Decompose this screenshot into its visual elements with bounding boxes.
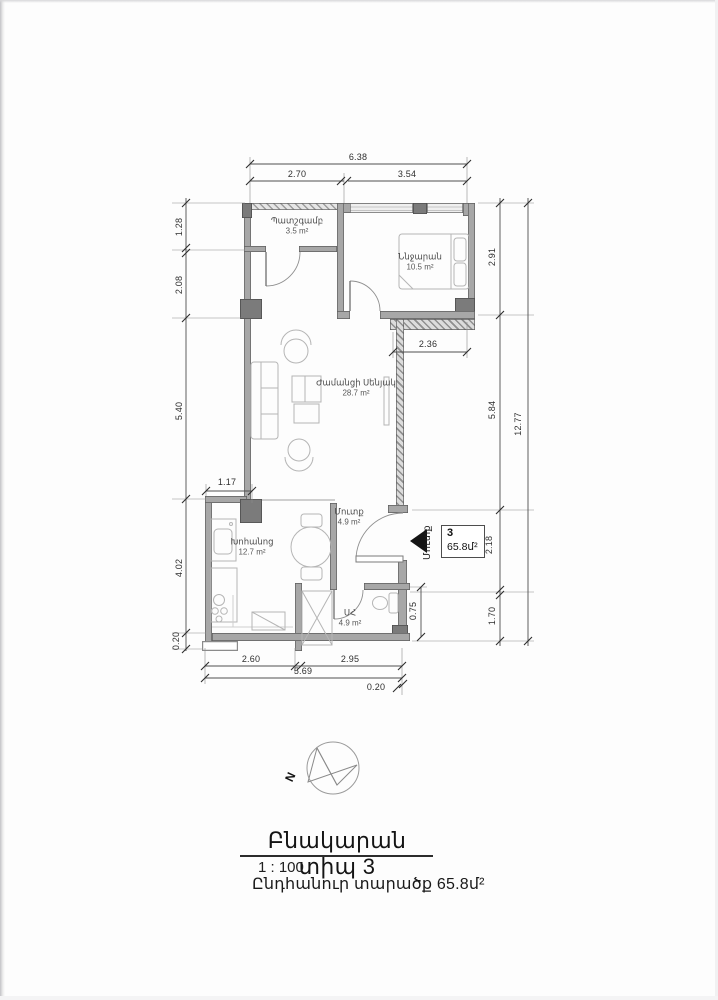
room-name: Ննջարան [398, 251, 442, 262]
title-underline [240, 855, 433, 857]
balcony-railing [244, 203, 343, 210]
room-label-bathroom: ՍՀ 4.9 m² [339, 607, 362, 628]
wall-segment [337, 311, 350, 319]
dim-left-2: 2.08 [174, 276, 184, 294]
room-area: 4.9 m² [334, 517, 364, 527]
kitchen-cabinet [252, 612, 285, 630]
page-edge-top [0, 0, 718, 3]
dining-table [291, 514, 331, 580]
wall-segment [299, 246, 337, 252]
room-area: 4.9 m² [339, 618, 362, 628]
bedroom-window [350, 203, 413, 213]
room-name: Պատշգամբ [271, 215, 323, 226]
dim-right-total: 12.77 [513, 412, 523, 436]
room-area: 10.5 m² [398, 262, 442, 272]
room-name: Մուտք [334, 506, 364, 517]
toilet [373, 593, 399, 613]
room-area: 12.7 m² [230, 547, 273, 557]
armchair [285, 439, 313, 471]
dim-right-2: 5.84 [487, 401, 497, 419]
dim-left-5: 0.20 [171, 632, 181, 650]
wall-segment [388, 505, 408, 513]
room-name: ՍՀ [339, 607, 362, 618]
page-edge-left [0, 0, 5, 1000]
room-label-kitchen: Խոհանոց 12.7 m² [230, 536, 273, 557]
apartment-area: 65.8մ² [447, 541, 484, 554]
dim-right-bottom: 0.75 [408, 602, 418, 620]
dim-bottom-right: 2.95 [341, 654, 359, 664]
kitchen-opening-line [262, 499, 335, 501]
dimension-lines [186, 164, 528, 678]
dim-left-4: 4.02 [174, 559, 184, 577]
balcony-door-arc [266, 252, 300, 286]
room-label-hall: Մուտք 4.9 m² [334, 506, 364, 527]
counter-line [212, 595, 293, 627]
room-label-living: Ժամանցի Սենյակ 28.7 m² [316, 377, 396, 398]
entry-arrow-label: Մուտք [422, 525, 433, 560]
bedroom-window [427, 203, 463, 213]
dim-bottom-total: 5.69 [294, 666, 312, 676]
north-compass [307, 742, 359, 794]
wall-segment [380, 311, 475, 319]
dim-top-left: 2.70 [288, 169, 306, 179]
dim-right-4: 1.70 [487, 607, 497, 625]
dim-left-3: 5.40 [174, 402, 184, 420]
wall-segment [212, 633, 410, 641]
exterior-wall [396, 319, 404, 510]
wall-segment [244, 246, 266, 252]
exterior-step [202, 641, 238, 651]
room-name: Խոհանոց [230, 536, 273, 547]
dim-right-3: 2.18 [484, 536, 494, 554]
room-name: Ժամանցի Սենյակ [316, 377, 396, 388]
total-area: Ընդհանուր տարածք 65.8մ² [252, 874, 485, 894]
dim-top-right: 3.54 [398, 169, 416, 179]
dim-top-total: 6.38 [349, 152, 367, 162]
column [242, 203, 252, 218]
north-label: N [282, 770, 298, 784]
wall-segment [337, 203, 344, 313]
dim-niche: 2.36 [419, 339, 437, 349]
column [240, 299, 262, 319]
room-label-balcony: Պատշգամբ 3.5 m² [271, 215, 323, 236]
sofa [251, 362, 278, 439]
page-edge-bottom [0, 996, 718, 1000]
dim-bottom-left: 2.60 [242, 654, 260, 664]
room-area: 28.7 m² [316, 388, 396, 398]
armchair [281, 330, 311, 363]
apartment-number: 3 [447, 527, 484, 541]
wall-segment [205, 496, 212, 651]
entry-door-panel [356, 556, 403, 562]
bedroom-door-arc [350, 281, 380, 311]
apartment-tag: 3 65.8մ² [441, 525, 485, 558]
stove [211, 568, 237, 622]
floor-plan-sheet: Պատշգամբ 3.5 m² Ննջարան 10.5 m² Ժամանցի … [0, 0, 718, 1000]
dim-kitchen-step: 1.17 [218, 477, 236, 487]
dim-bottom-offset: 0.20 [367, 682, 385, 692]
room-label-bedroom: Ննջարան 10.5 m² [398, 251, 442, 272]
wall-segment [364, 583, 410, 590]
room-area: 3.5 m² [271, 226, 323, 236]
column [240, 499, 262, 523]
dim-right-1: 2.91 [487, 248, 497, 266]
dim-left-1: 1.28 [174, 218, 184, 236]
window-pier [413, 203, 427, 214]
